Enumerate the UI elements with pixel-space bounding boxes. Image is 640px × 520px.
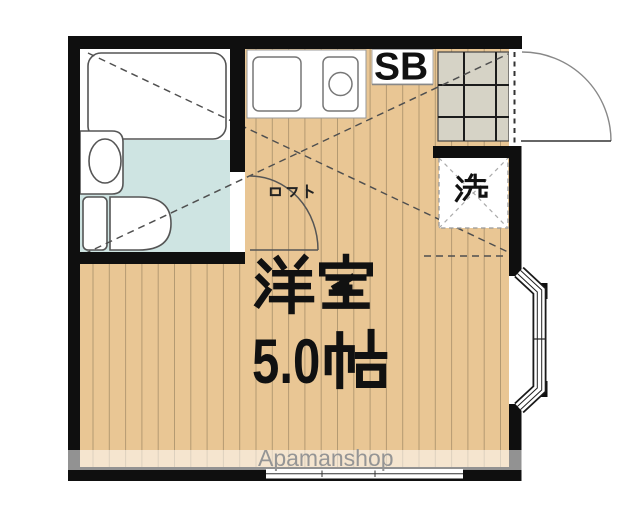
svg-text:SB: SB <box>374 46 428 89</box>
svg-text:5.0: 5.0 <box>252 326 320 396</box>
svg-text:Apamanshop: Apamanshop <box>258 445 394 471</box>
